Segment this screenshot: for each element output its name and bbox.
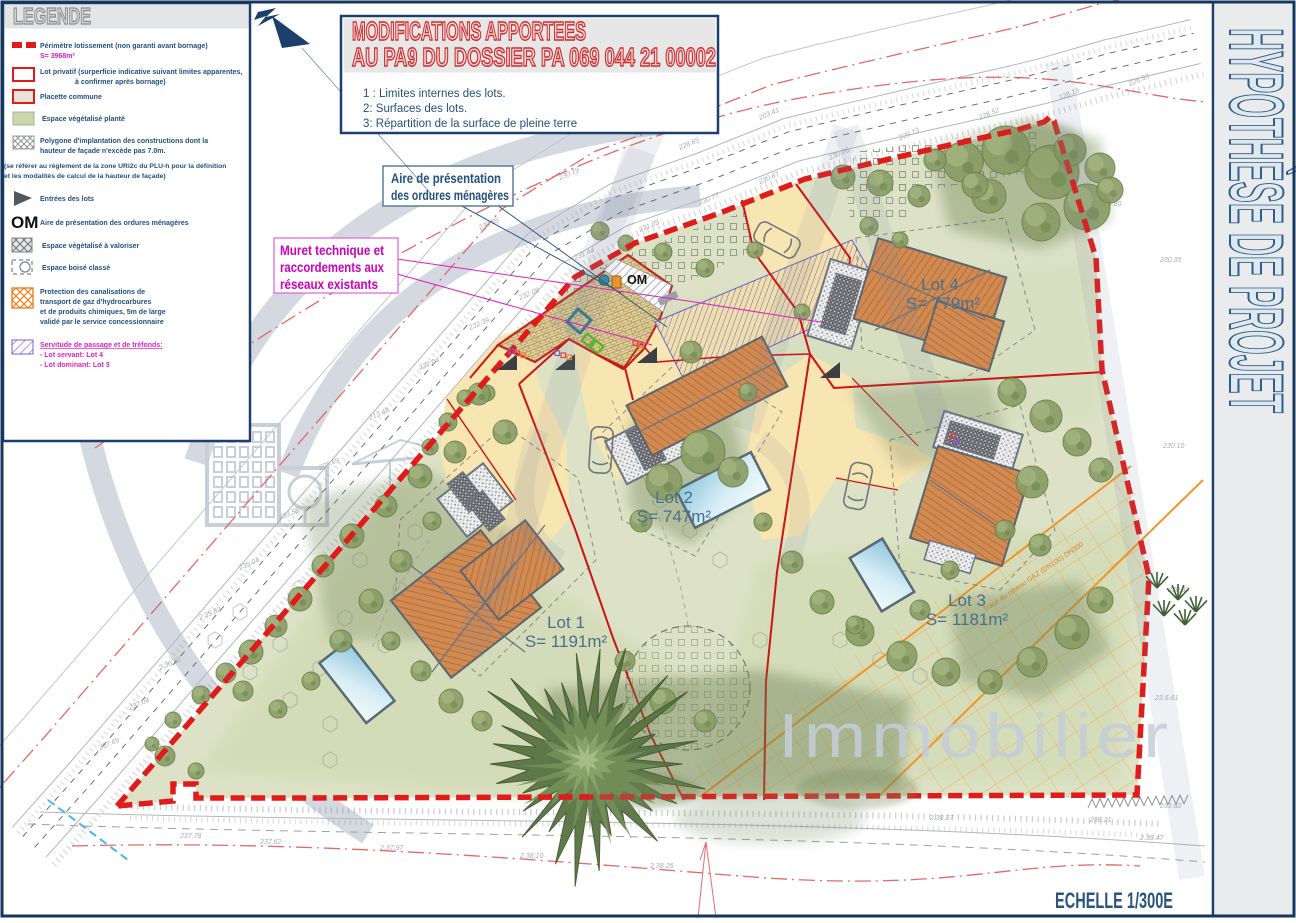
svg-text:2.38.27: 2.38.27 xyxy=(929,815,954,822)
svg-text:validé par le service concessi: validé par le service concessionnaire xyxy=(40,319,164,326)
svg-text:Espace végétalisé planté: Espace végétalisé planté xyxy=(42,116,125,123)
svg-text:Aire de présentation des ordur: Aire de présentation des ordures ménagèr… xyxy=(40,220,189,227)
svg-text:238.21: 238.21 xyxy=(1089,817,1112,824)
svg-text:Entrées des lots: Entrées des lots xyxy=(40,196,94,203)
svg-text:2.37.97: 2.37.97 xyxy=(379,845,404,852)
svg-text:1 : Limites internes des lots.: 1 : Limites internes des lots. xyxy=(363,88,506,100)
svg-text:ECHELLE 1/300E: ECHELLE 1/300E xyxy=(1055,888,1173,913)
svg-text:à confirmer après bornage): à confirmer après bornage) xyxy=(75,79,166,86)
svg-text:S= 1191m²: S= 1191m² xyxy=(525,632,608,651)
svg-text:et les modalités de calcul de: et les modalités de calcul de la hauteur… xyxy=(4,173,166,180)
svg-text:Immobilier: Immobilier xyxy=(778,702,1173,771)
svg-text:et de produits chimiques, 5m d: et de produits chimiques, 5m de large xyxy=(40,309,166,316)
svg-text:S= 3968m²: S= 3968m² xyxy=(40,53,75,60)
svg-text:2.38.10: 2.38.10 xyxy=(519,853,543,860)
svg-text:2.38.47: 2.38.47 xyxy=(1139,835,1164,842)
svg-text:réseaux existants: réseaux existants xyxy=(280,276,378,292)
svg-text:S= 779m²: S= 779m² xyxy=(906,294,981,313)
svg-text:AU PA9 DU DOSSIER PA 069 044 2: AU PA9 DU DOSSIER PA 069 044 21 00002 xyxy=(352,42,716,72)
svg-text:Lot 3: Lot 3 xyxy=(948,591,986,610)
svg-text:S= 747m²: S= 747m² xyxy=(637,507,712,526)
svg-text:3: Répartition de la surface d: 3: Répartition de la surface de pleine t… xyxy=(363,118,577,130)
svg-text:237.78: 237.78 xyxy=(179,833,202,840)
svg-text:(se référer au règlement de la: (se référer au règlement de la zone URi2… xyxy=(4,163,226,170)
svg-text:Muret technique et: Muret technique et xyxy=(280,242,384,258)
svg-text:Placette commune: Placette commune xyxy=(40,94,102,101)
svg-text:Espace végétalisé à valoriser: Espace végétalisé à valoriser xyxy=(42,243,140,250)
svg-text:237.62: 237.62 xyxy=(259,839,282,846)
svg-text:230.10: 230.10 xyxy=(1162,443,1185,450)
svg-text:Lot 4: Lot 4 xyxy=(921,275,959,294)
svg-text:OM: OM xyxy=(11,213,38,232)
svg-text:2: Surfaces des lots.: 2: Surfaces des lots. xyxy=(363,103,467,115)
svg-text:Aire de présentation: Aire de présentation xyxy=(391,170,501,186)
svg-text:OM: OM xyxy=(627,273,647,287)
svg-text:S= 1181m²: S= 1181m² xyxy=(926,610,1009,629)
svg-text:230.35: 230.35 xyxy=(1159,257,1182,264)
svg-text:Polygone d'implantation des co: Polygone d'implantation des construction… xyxy=(40,138,208,145)
svg-text:Espace boisé classé: Espace boisé classé xyxy=(42,265,110,272)
svg-text:LEGENDE: LEGENDE xyxy=(13,3,91,29)
svg-text:transport de gaz d'hydrocarbur: transport de gaz d'hydrocarbures xyxy=(40,299,151,306)
svg-text:Servitude de passage et de tré: Servitude de passage et de tréfonds: xyxy=(40,342,163,349)
svg-text:Lot 2: Lot 2 xyxy=(655,488,693,507)
svg-text:raccordements aux: raccordements aux xyxy=(280,259,384,275)
svg-text:- Lot dominant: Lot 3: - Lot dominant: Lot 3 xyxy=(40,362,110,369)
svg-text:Protection des canalisations d: Protection des canalisations de xyxy=(40,289,145,296)
svg-text:- Lot servant: Lot 4: - Lot servant: Lot 4 xyxy=(40,352,103,359)
svg-text:Lot privatif (surperficie indi: Lot privatif (surperficie indicative sui… xyxy=(40,69,242,76)
svg-text:2.38.26: 2.38.26 xyxy=(649,863,673,870)
svg-text:des ordures ménagères: des ordures ménagères xyxy=(391,187,509,203)
svg-text:hauteur de façade n'excède pas: hauteur de façade n'excède pas 7.0m. xyxy=(40,148,165,155)
svg-text:Périmètre lotissement (non gar: Périmètre lotissement (non garanti avant… xyxy=(40,43,208,50)
svg-text:HYPOTHÈSE DE PROJET: HYPOTHÈSE DE PROJET xyxy=(1213,28,1296,413)
svg-text:Lot 1: Lot 1 xyxy=(547,613,585,632)
